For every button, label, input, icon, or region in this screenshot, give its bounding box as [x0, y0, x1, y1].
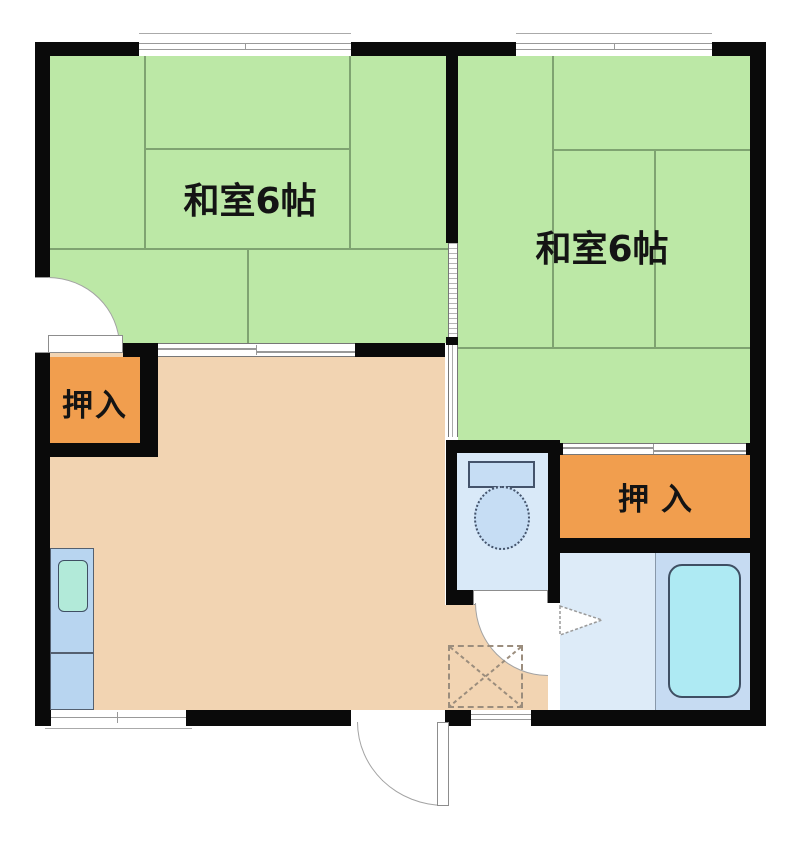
- closet-2-label: 押入: [560, 480, 750, 520]
- fusuma-center-tick: [653, 444, 654, 454]
- wall-room1-bottom-b: [355, 343, 445, 357]
- wall-divider-stub: [446, 337, 458, 345]
- fusuma-center-tick: [256, 345, 257, 355]
- wall-room-divider: [446, 42, 458, 243]
- tatami-line: [247, 248, 249, 343]
- wall-closet2-bottom: [548, 538, 750, 553]
- window-center-tick: [614, 43, 615, 50]
- tatami-line: [458, 347, 750, 349]
- wall-left: [35, 42, 50, 726]
- fusuma-panel-line: [158, 348, 257, 350]
- window-center-tick: [245, 43, 246, 50]
- fusuma-panel-line: [563, 447, 654, 449]
- wall-toilet-right: [548, 440, 560, 603]
- genkan-cross-icon: [448, 645, 523, 708]
- bathroom-divider-line: [655, 553, 656, 710]
- wall-closet1-bottom: [35, 443, 158, 457]
- toilet-tank-icon: [468, 461, 535, 488]
- fusuma-panel-line: [256, 351, 355, 353]
- wall-toilet-left: [446, 440, 457, 605]
- fusuma-dk-to-room2: [448, 345, 458, 437]
- tatami-room-2-label: 和室6帖: [452, 228, 752, 272]
- fusuma-closet2-doors: [563, 443, 746, 455]
- window-sill-line: [45, 728, 192, 729]
- bathtub-icon: [668, 564, 741, 698]
- toilet-icon: [474, 486, 530, 550]
- front-door-leaf: [437, 722, 449, 806]
- tatami-room-1-label: 和室6帖: [100, 180, 400, 224]
- tatami-line: [552, 149, 750, 151]
- window-kitchen-bottom: [51, 710, 186, 726]
- wall-right: [750, 42, 766, 726]
- closet-1-label: 押入: [50, 386, 140, 426]
- fusuma-panel-line: [653, 450, 746, 452]
- floorplan-canvas: 和室6帖 和室6帖 押入 押入: [0, 0, 800, 858]
- wall-closet1-right: [140, 343, 158, 457]
- tatami-line: [552, 56, 554, 348]
- wall-toilet-bottom-stub: [446, 590, 473, 605]
- tatami-line: [50, 248, 448, 250]
- kitchen-counter-divider: [50, 652, 94, 654]
- fusuma-center-line: [452, 345, 453, 437]
- wall-room2-bottom-right: [746, 443, 750, 455]
- threshold-line: [471, 714, 531, 715]
- bath-door-arrow-icon: [558, 604, 606, 638]
- tatami-line: [144, 148, 351, 150]
- threshold-line: [471, 719, 531, 720]
- room1-door-leaf: [48, 335, 123, 353]
- entrance-threshold: [471, 710, 531, 726]
- window-frame-line: [51, 717, 186, 718]
- kitchen-sink-icon: [58, 560, 88, 612]
- window-center-tick: [117, 712, 118, 723]
- front-door-swing: [357, 722, 445, 806]
